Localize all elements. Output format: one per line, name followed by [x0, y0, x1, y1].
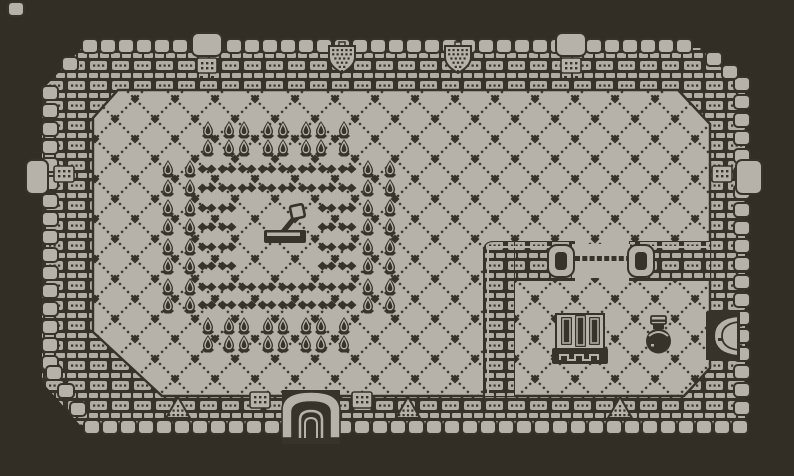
floor	[93, 90, 710, 396]
dungeon-map	[0, 0, 794, 476]
wall-deco-block	[250, 392, 270, 408]
chain-dot	[612, 256, 617, 261]
chain-dot	[575, 256, 580, 261]
left-buttress	[26, 160, 48, 194]
wall-deco-block	[54, 166, 74, 182]
chain-dot	[582, 256, 587, 261]
lever-knob[interactable]	[290, 204, 305, 219]
south-door[interactable]	[282, 390, 340, 444]
east-door[interactable]	[706, 312, 740, 360]
wall-end-cap	[548, 245, 574, 277]
chained-wall-gap	[572, 244, 631, 278]
chain-dot	[590, 256, 595, 261]
wall-deco-block	[712, 166, 732, 182]
right-battlement	[734, 77, 750, 415]
top-buttress	[192, 33, 222, 79]
wall-deco-block	[352, 392, 372, 408]
chain-dot	[619, 256, 624, 261]
bottom-battlement	[84, 420, 748, 434]
chain-dot	[597, 256, 602, 261]
right-buttress	[736, 160, 762, 194]
game-screen	[0, 0, 794, 476]
chain-dot	[604, 256, 609, 261]
wall-end-cap	[628, 245, 654, 277]
barred-shrine	[552, 314, 608, 364]
top-buttress	[556, 33, 586, 79]
